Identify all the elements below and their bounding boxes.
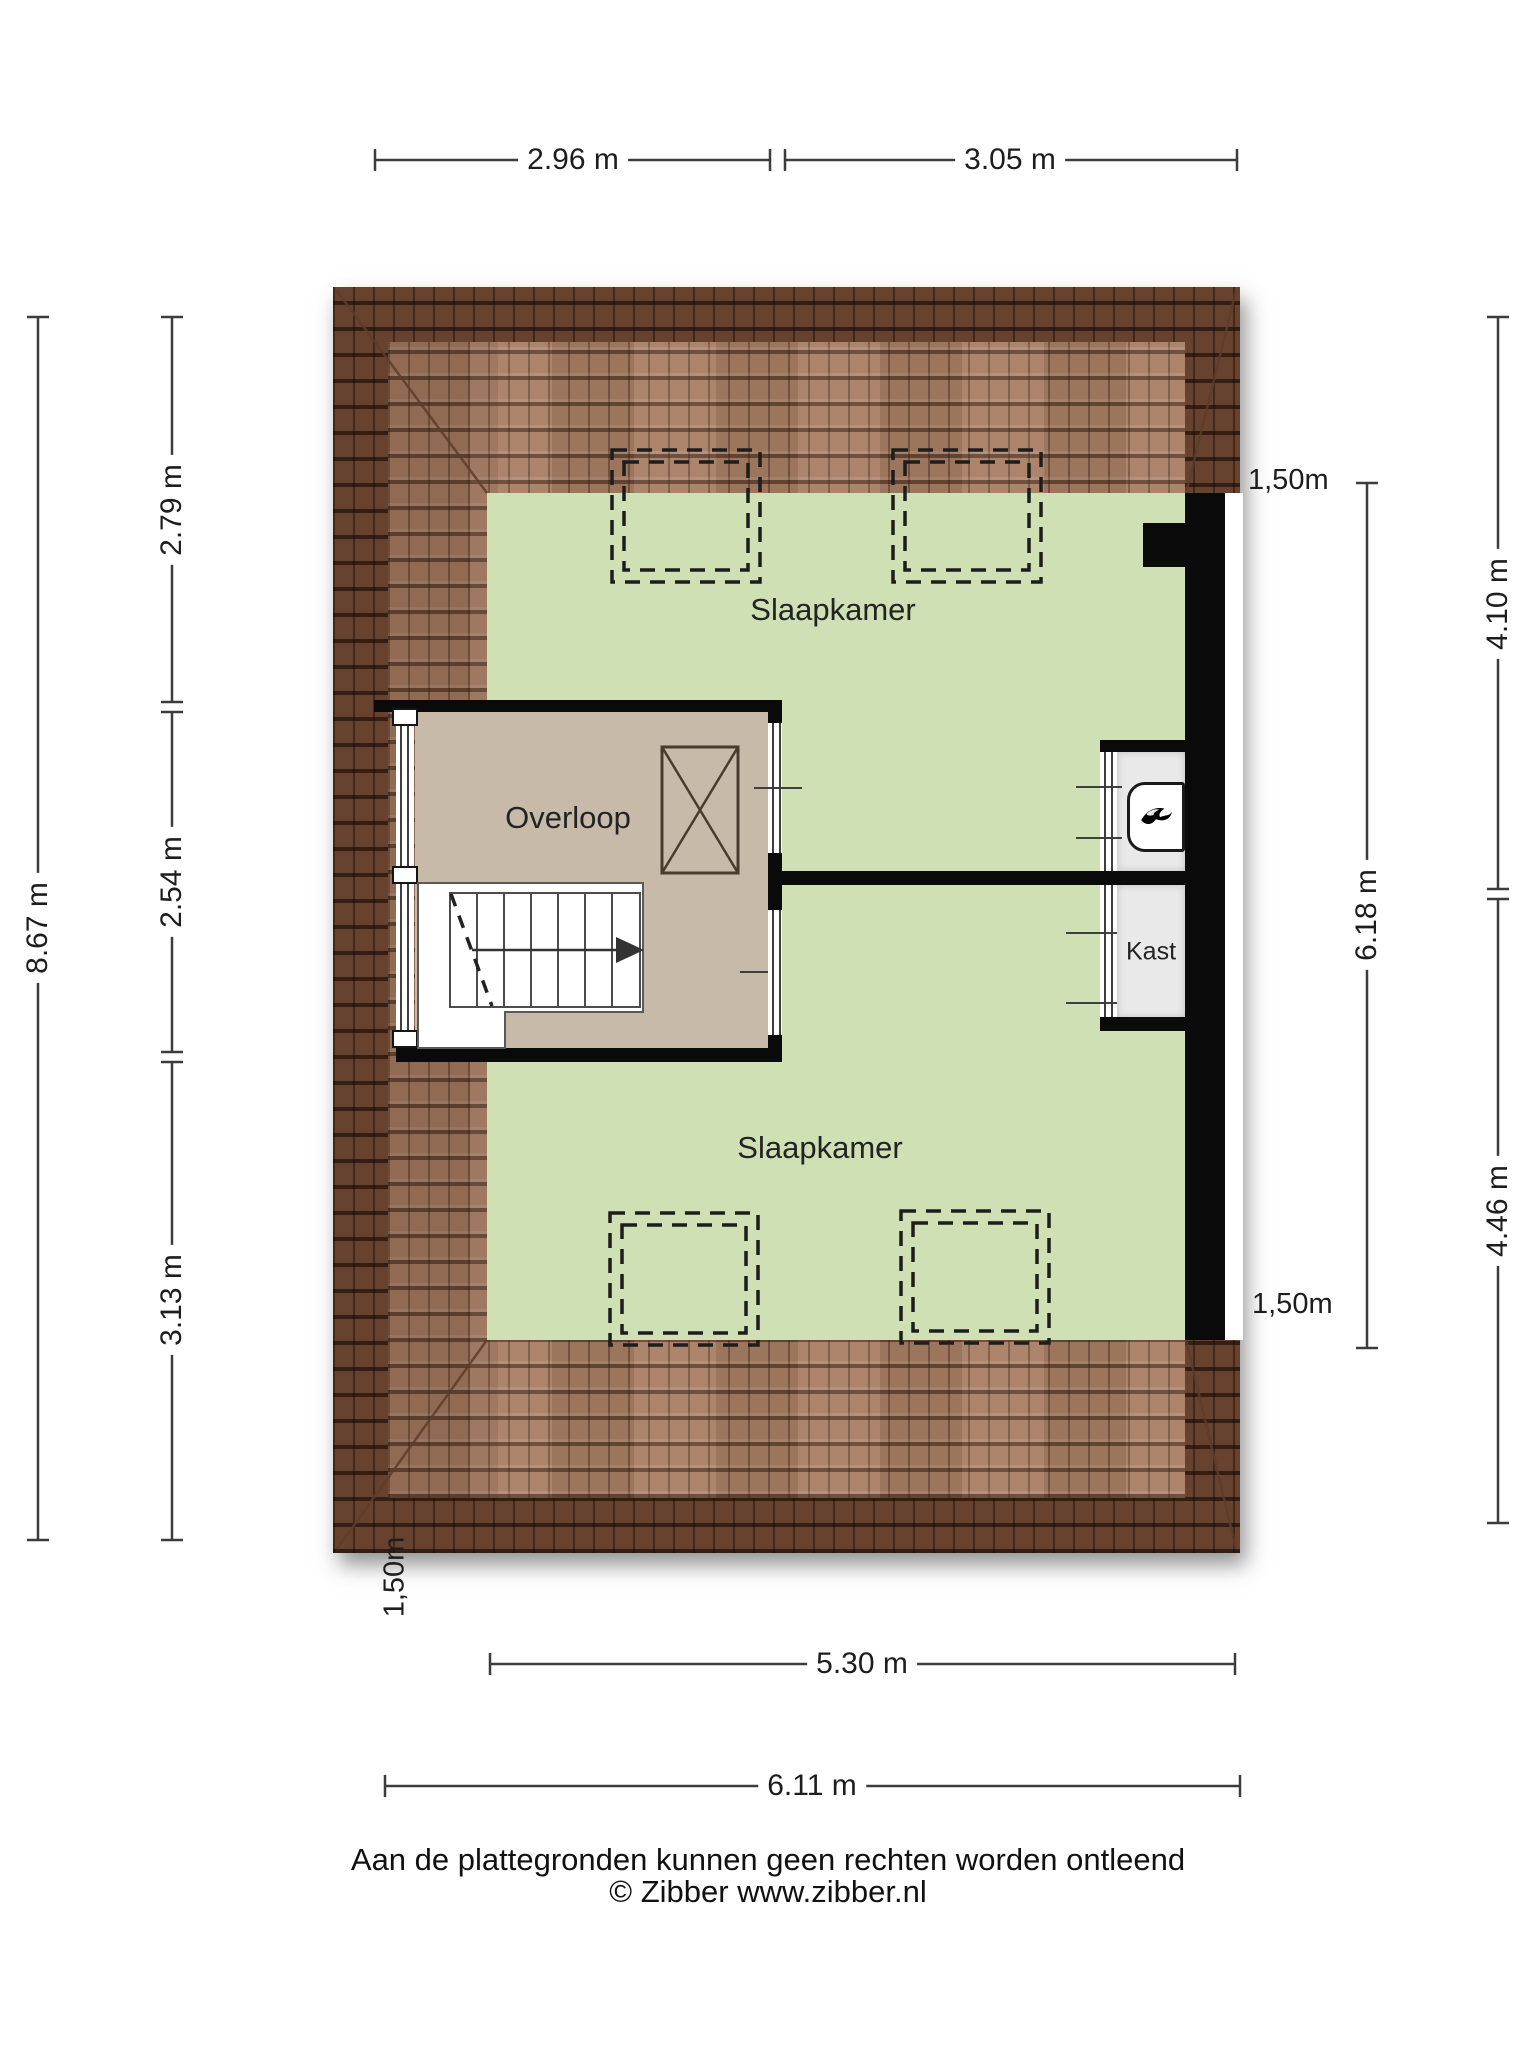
- dim-right-outer-top: 4.10 m: [1481, 549, 1515, 659]
- closet-bottom-wall: [1100, 1017, 1185, 1031]
- landing-right-wall-b: [768, 853, 782, 910]
- headroom-note-bottom-right: 1,50m: [1252, 1288, 1333, 1321]
- landing-door-opening: [768, 910, 782, 1035]
- headroom-note-top-right: 1,50m: [1248, 464, 1329, 497]
- dim-top-right: 3.05 m: [955, 143, 1065, 177]
- closet-door: [1100, 885, 1117, 1017]
- dim-top-left: 2.96 m: [518, 143, 628, 177]
- landing-right-wall-a: [768, 712, 782, 723]
- landing-floor-area: [415, 712, 768, 1048]
- boiler-niche-top-wall: [1100, 740, 1185, 752]
- footer-disclaimer: Aan de plattegronden kunnen geen rechten…: [0, 1842, 1536, 1878]
- flame-icon: [1138, 803, 1174, 831]
- dim-right-outer-bottom: 4.46 m: [1481, 1156, 1515, 1266]
- chimney-notch: [1143, 523, 1185, 567]
- boiler-closet-divider-wall: [1100, 871, 1185, 885]
- dim-left-s2: 2.54 m: [155, 827, 189, 937]
- room-label-closet: Kast: [1126, 938, 1176, 967]
- dim-left-s1: 2.79 m: [155, 455, 189, 565]
- boiler-niche-door: [1100, 752, 1117, 871]
- dim-bottom-outer: 6.11 m: [758, 1769, 866, 1803]
- dim-right-inner: 6.18 m: [1350, 860, 1384, 970]
- roof-right-cutout: [1225, 493, 1243, 1340]
- landing-top-wall: [374, 700, 782, 712]
- room-label-bedroom-top: Slaapkamer: [750, 592, 915, 628]
- landing-bottom-wall: [396, 1048, 782, 1062]
- dim-bottom-inner: 5.30 m: [807, 1647, 917, 1681]
- landing-interior-window: [768, 723, 782, 853]
- floorplan-page: Slaapkamer Slaapkamer Overloop Kast 2.96…: [0, 0, 1536, 2048]
- boiler-unit: [1127, 782, 1185, 852]
- window-cap-top: [392, 708, 418, 726]
- dim-left-s3: 3.13 m: [155, 1245, 189, 1355]
- headroom-note-bottom-left: 1,50m: [379, 1537, 412, 1618]
- room-label-landing: Overloop: [505, 800, 631, 836]
- dim-left-outer: 8.67 m: [21, 873, 55, 983]
- window-cap-middle: [392, 866, 418, 884]
- footer-copyright: © Zibber www.zibber.nl: [0, 1874, 1536, 1910]
- room-label-bedroom-bottom: Slaapkamer: [737, 1130, 902, 1166]
- right-exterior-wall: [1185, 493, 1225, 1340]
- window-cap-bottom: [392, 1030, 418, 1048]
